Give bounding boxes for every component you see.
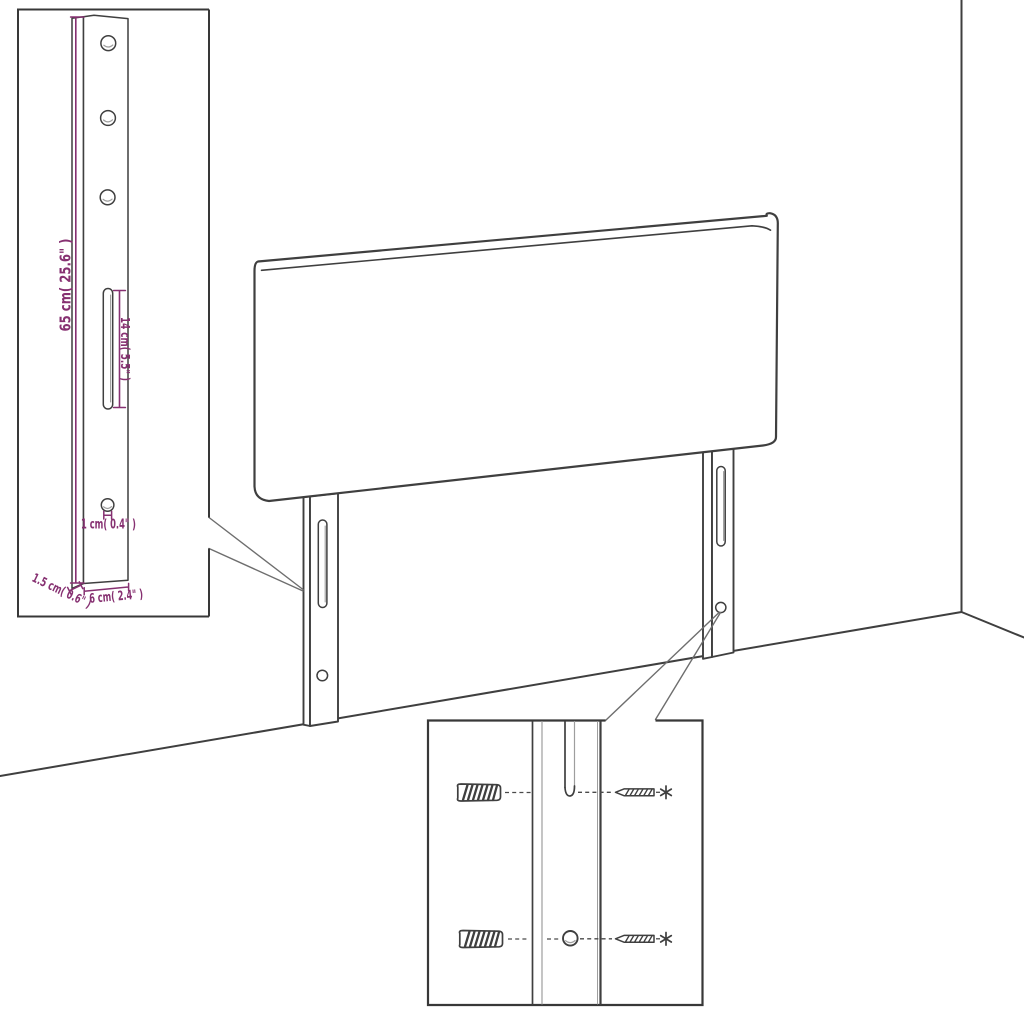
wall-anchor-top — [458, 784, 501, 801]
leg-cross-section — [533, 722, 601, 1005]
callout-line — [209, 518, 303, 590]
bracket-hole-1 — [101, 36, 116, 51]
screw-head-icon — [661, 933, 672, 946]
callout-wedge-left — [209, 518, 303, 592]
dim-height-label: 65 cm( 25.6" ) — [57, 239, 75, 332]
floor-wall-edge-right — [962, 612, 1024, 638]
callout-line — [606, 612, 720, 720]
pilot-hole — [563, 931, 578, 946]
assembly-diagram-page: 65 cm( 25.6" ) 14 cm( 5.5" ) 1 cm( 0.4" … — [0, 0, 1024, 1024]
headboard-left-leg — [304, 493, 339, 726]
screw-head-icon — [661, 786, 672, 799]
right-leg-screw-hole — [716, 602, 726, 612]
headboard-panel — [255, 213, 778, 501]
callout-line — [209, 549, 303, 592]
mounting-detail-inset — [428, 721, 703, 1006]
left-leg-screw-hole — [317, 670, 328, 681]
bracket-detail-inset: 65 cm( 25.6" ) 14 cm( 5.5" ) 1 cm( 0.4" … — [18, 10, 209, 617]
panel-outline — [255, 213, 778, 501]
floor-wall-edge-left — [0, 612, 962, 776]
bracket-small-hole — [101, 499, 114, 512]
bracket-hole-3 — [100, 190, 115, 205]
dim-slot-label: 14 cm( 5.5" ) — [118, 317, 133, 381]
headboard-right-leg — [703, 447, 734, 659]
dim-hole-label: 1 cm( 0.4" ) — [81, 518, 136, 533]
screw-bottom — [616, 933, 672, 946]
headboard-assembly-diagram: 65 cm( 25.6" ) 14 cm( 5.5" ) 1 cm( 0.4" … — [0, 0, 1024, 1024]
callout-line — [656, 613, 721, 720]
left-leg-side-face — [304, 496, 311, 726]
bracket-slot — [103, 289, 112, 410]
screw-top — [616, 786, 672, 799]
slot-bottom-curve — [565, 786, 575, 796]
bracket-hole-2 — [101, 111, 116, 126]
wall-anchor-bottom — [460, 931, 503, 948]
